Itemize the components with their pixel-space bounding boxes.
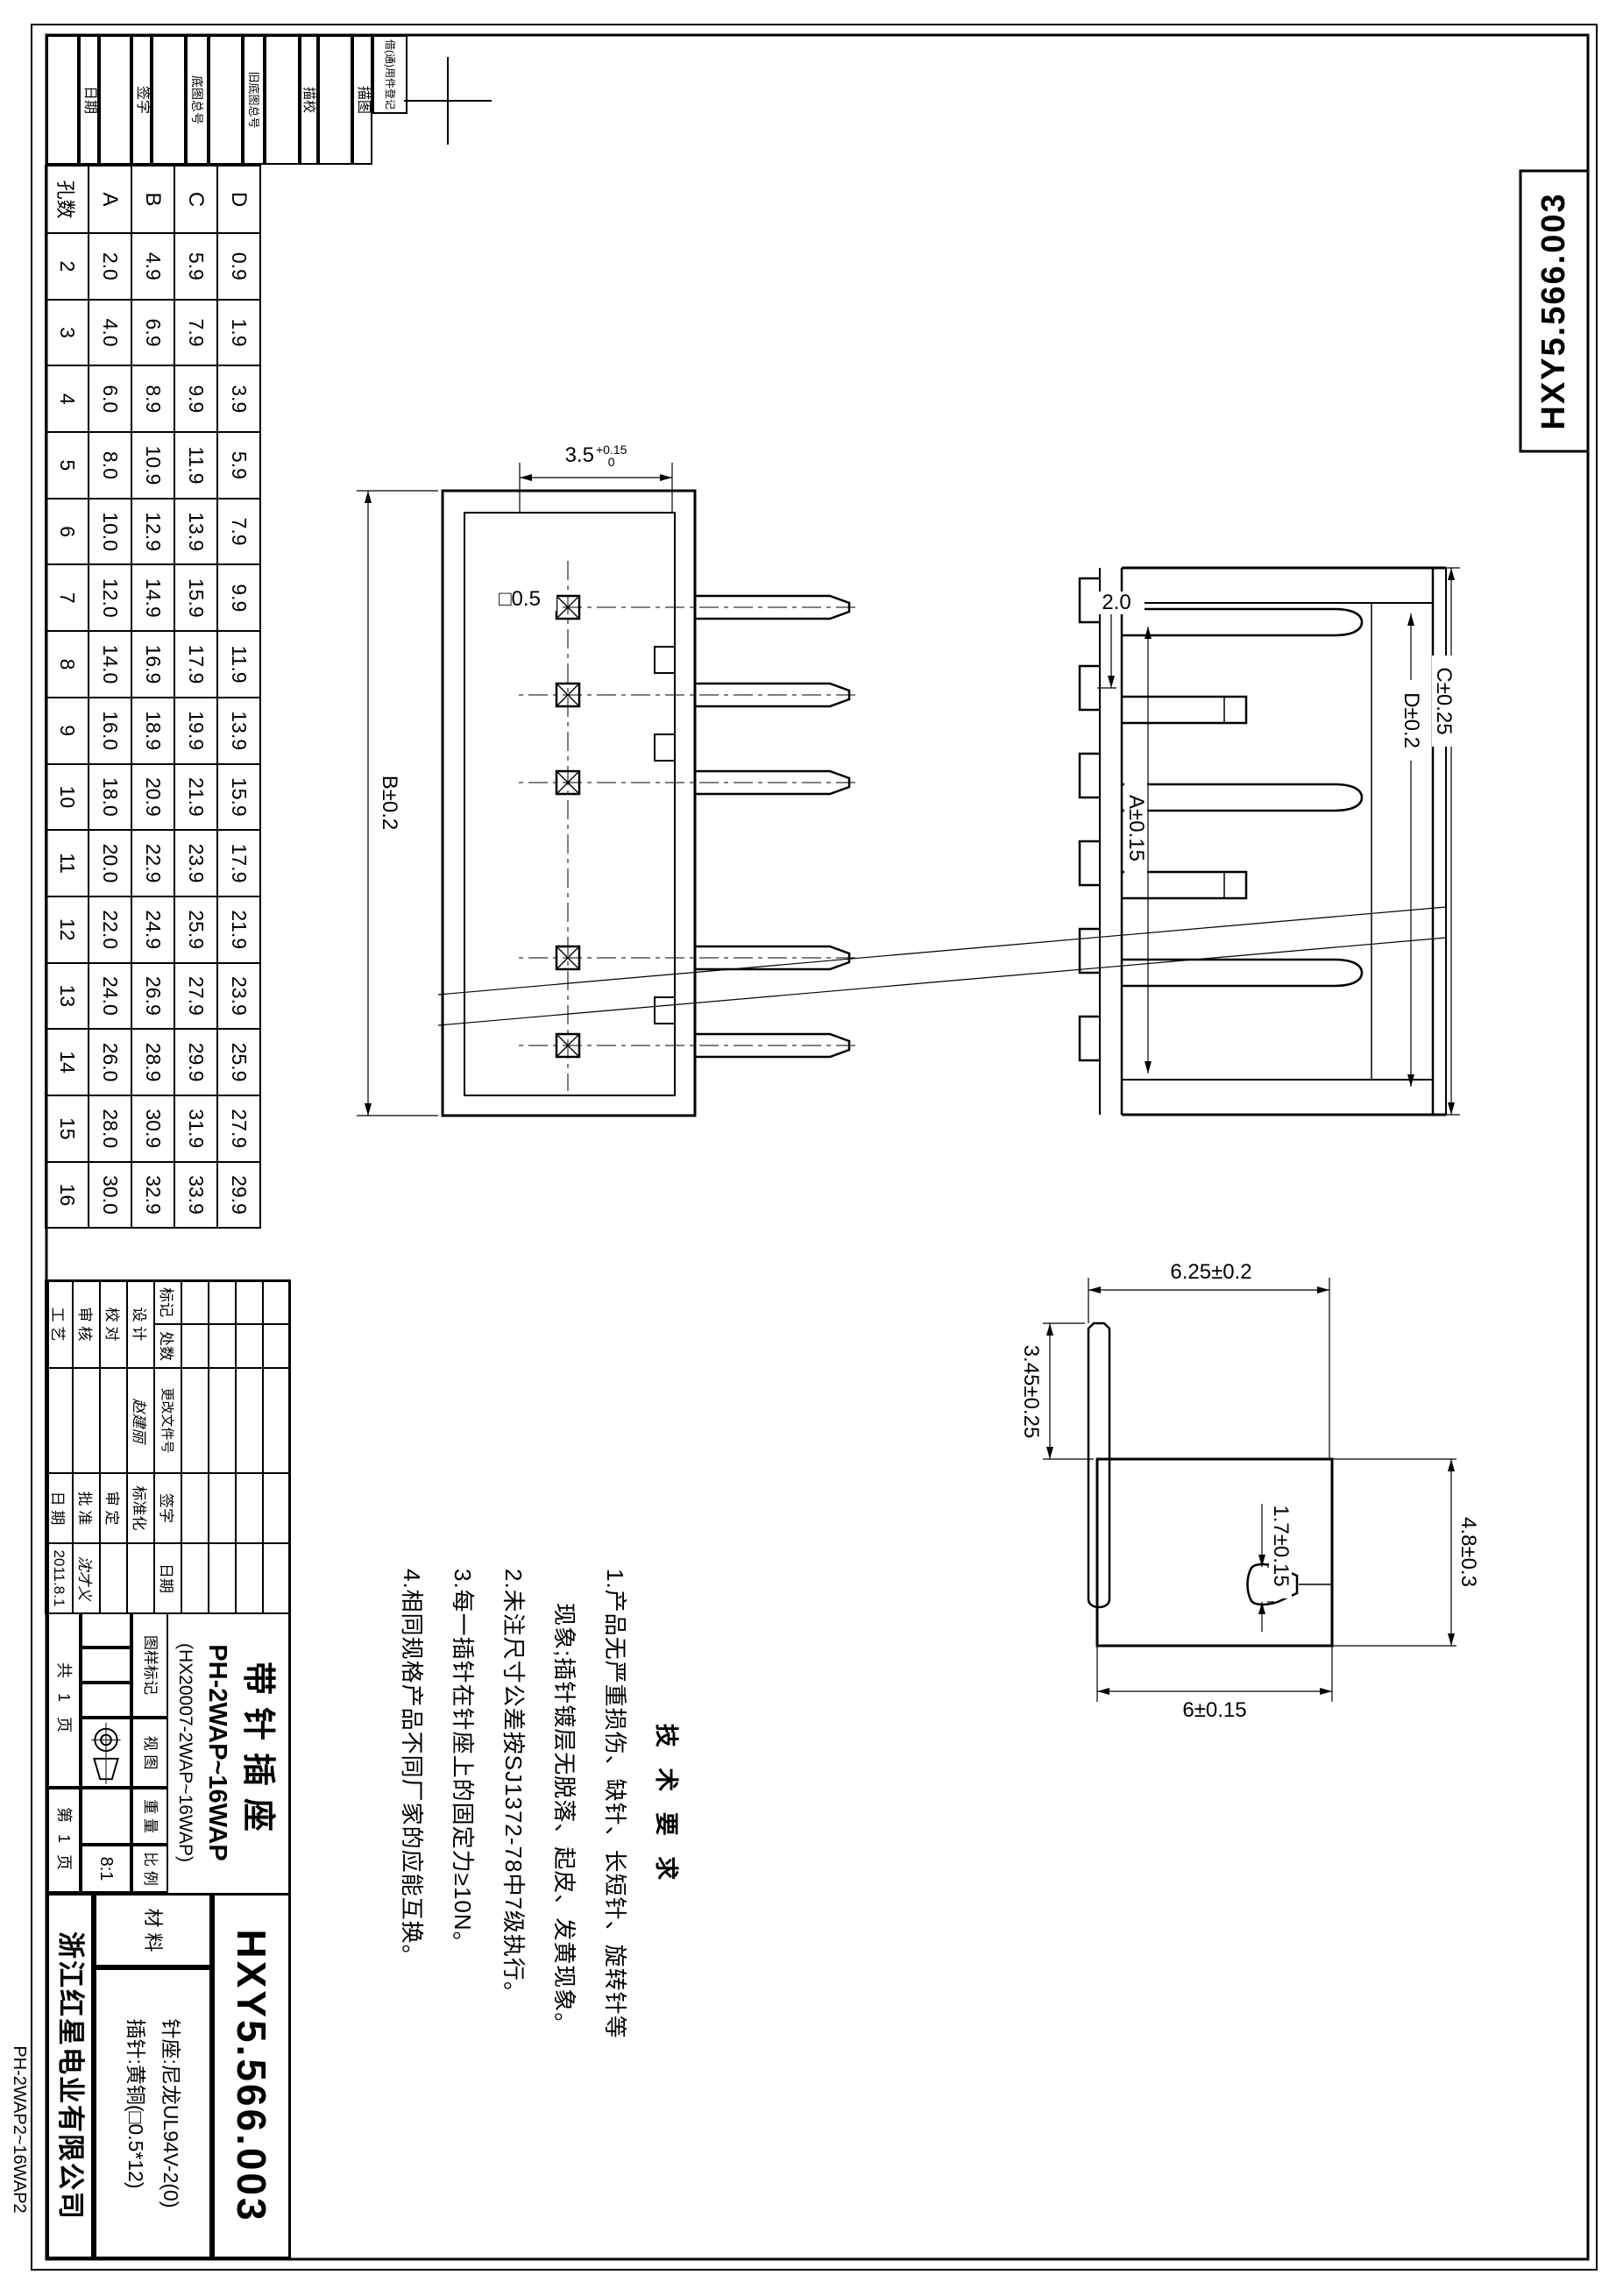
projection-symbol-cell xyxy=(81,1718,131,1788)
param-table-cell: 15 xyxy=(46,1095,89,1162)
fold-mark-cross xyxy=(404,57,492,145)
param-table-cell: 27.9 xyxy=(217,1095,260,1162)
param-table-cell: 32.9 xyxy=(131,1162,174,1229)
margin-strip-blank xyxy=(152,35,186,165)
revision-empty-cell xyxy=(236,1324,263,1368)
break-lines xyxy=(438,907,1446,1025)
marks-label-cell: 图样标记 xyxy=(131,1612,168,1718)
param-table-row: A2.04.06.08.010.012.014.016.018.020.022.… xyxy=(89,166,131,1228)
param-table-cell: 9.9 xyxy=(217,564,260,631)
param-table-cell: 14 xyxy=(46,1029,89,1095)
dim-side-outer: C±0.25 xyxy=(1432,655,1455,747)
part-title: 带针插座 xyxy=(237,1612,287,1893)
param-table-row-header: C xyxy=(174,166,217,233)
revision-empty-cell xyxy=(263,1543,290,1613)
param-table-cell: 14.0 xyxy=(89,631,131,698)
param-table-cell: 10 xyxy=(46,764,89,831)
param-table-cell: 3.9 xyxy=(217,365,260,432)
param-table-row-header: 孔数 xyxy=(46,166,89,233)
param-table-cell: 6.9 xyxy=(131,300,174,366)
param-table-cell: 6 xyxy=(46,499,89,565)
param-table-cell: 12 xyxy=(46,896,89,963)
param-table-cell: 12.9 xyxy=(131,499,174,565)
param-table-cell: 28.9 xyxy=(131,1029,174,1095)
titleblock-drawing-number: HXY5.566.003 xyxy=(212,1893,291,2259)
material-value-cell: 针座:尼龙UL94V-2(0) 插针:黄铜(□0.5*12) xyxy=(94,1967,212,2259)
dim-side-pitch: 2.0 xyxy=(1088,592,1145,614)
sign-name-2 xyxy=(127,1543,154,1613)
sign-name-2 xyxy=(100,1543,127,1613)
param-table-cell: 5.9 xyxy=(174,233,217,300)
param-table-cell: 29.9 xyxy=(217,1162,260,1229)
revision-empty-cell xyxy=(209,1473,236,1543)
param-table-cell: 20.9 xyxy=(131,764,174,831)
param-table-cell: 21.9 xyxy=(174,764,217,831)
param-table-cell: 13.9 xyxy=(217,698,260,764)
param-table-cell: 3 xyxy=(46,300,89,366)
param-table-cell: 23.9 xyxy=(174,830,217,896)
margin-strip-label: 旧底图总号 xyxy=(243,35,265,165)
param-table-cell: 7.9 xyxy=(217,499,260,565)
margin-strip-blank xyxy=(99,35,131,165)
param-table-cell: 17.9 xyxy=(174,631,217,698)
revision-header-cell: 处数 xyxy=(154,1324,181,1368)
tech-requirement-line: 4.相同规格产品不同厂家的应能互换。 xyxy=(397,1569,429,1968)
param-table-cell: 5 xyxy=(46,432,89,499)
param-table-row: 孔数2345678910111213141516 xyxy=(46,166,89,1228)
param-table-cell: 4.9 xyxy=(131,233,174,300)
tech-requirement-line: 1.产品无严重损伤、缺针、长短针、旋转针等 xyxy=(600,1569,633,2039)
param-table-cell: 26.0 xyxy=(89,1029,131,1095)
param-table-cell: 20.0 xyxy=(89,830,131,896)
dim-detail-body: 6±0.15 xyxy=(1171,1699,1258,1722)
param-table-cell: 8 xyxy=(46,631,89,698)
material-line-2: 插针:黄铜(□0.5*12) xyxy=(118,2018,152,2207)
param-table-cell: 6.0 xyxy=(89,365,131,432)
param-table-cell: 9.9 xyxy=(174,365,217,432)
scale-value-cell: 8:1 xyxy=(81,1845,131,1893)
view-label-cell: 视 图 xyxy=(131,1718,168,1788)
corner-drawing-number: HXY5.566.003 xyxy=(1520,171,1588,451)
param-table-cell: 28.0 xyxy=(89,1095,131,1162)
tech-requirement-line: 2.未注尺寸公差按SJ1372-78中7级执行。 xyxy=(499,1569,531,2005)
param-table-cell: 4 xyxy=(46,365,89,432)
sign-role-label: 设 计 xyxy=(127,1280,154,1368)
marks-box-1 xyxy=(81,1612,131,1648)
revision-empty-cell xyxy=(181,1280,209,1324)
sheets-total-cell: 共 1 页 xyxy=(46,1612,81,1788)
margin-strip-blank xyxy=(209,35,243,165)
param-table-cell: 25.9 xyxy=(217,1029,260,1095)
drawing-sheet: HXY5.566.003 借(通)用件登记描图描校旧底图总号底图总号签字日期 D… xyxy=(0,0,1623,2296)
dim-front-pitch-tol-dn: 0 xyxy=(596,456,627,468)
param-table-cell: 12.0 xyxy=(89,564,131,631)
param-table-cell: 16.0 xyxy=(89,698,131,764)
param-table-cell: 27.9 xyxy=(174,963,217,1030)
sign-role-label-2: 批 准 xyxy=(73,1473,100,1543)
param-table-cell: 11.9 xyxy=(217,631,260,698)
scale-label-cell: 比 例 xyxy=(131,1845,168,1893)
margin-strip-label: 描图 xyxy=(352,35,372,165)
revision-header-cell: 日期 xyxy=(154,1543,181,1613)
param-table-cell: 13.9 xyxy=(174,499,217,565)
param-table-cell: 8.9 xyxy=(131,365,174,432)
sign-name: 赵建丽 xyxy=(127,1368,154,1473)
param-table-cell: 21.9 xyxy=(217,896,260,963)
param-table-row: B4.96.98.910.912.914.916.918.920.922.924… xyxy=(131,166,174,1228)
dim-front-length: B±0.2 xyxy=(377,759,401,847)
margin-code: PH-2WAP2~16WAP2 xyxy=(9,1998,30,2261)
sign-name-2: 2011.8.1 xyxy=(46,1543,73,1613)
param-table-cell: 18.0 xyxy=(89,764,131,831)
param-table-cell: 16.9 xyxy=(131,631,174,698)
projection-symbol-icon xyxy=(82,1719,130,1786)
margin-strip-label: 借(通)用件登记 xyxy=(372,35,408,114)
margin-strip-blank xyxy=(46,35,79,165)
revision-empty-cell xyxy=(209,1324,236,1368)
param-table-cell: 10.0 xyxy=(89,499,131,565)
revision-empty-cell xyxy=(209,1543,236,1613)
margin-strip-label: 签字 xyxy=(131,35,152,165)
revision-empty-cell xyxy=(209,1368,236,1473)
dim-front-pin-square: □0.5 xyxy=(483,588,556,611)
param-table-cell: 23.9 xyxy=(217,963,260,1030)
param-table-cell: 5.9 xyxy=(217,432,260,499)
marks-box-2 xyxy=(81,1648,131,1683)
param-table-cell: 1.9 xyxy=(217,300,260,366)
dim-side-span: A±0.15 xyxy=(1124,783,1147,874)
sign-role-label: 工 艺 xyxy=(46,1280,73,1368)
drawing-pin-detail xyxy=(1043,1278,1456,1702)
param-table-cell: 0.9 xyxy=(217,233,260,300)
dim-front-pitch-tol-up: +0.15 xyxy=(596,443,627,456)
param-table-cell: 18.9 xyxy=(131,698,174,764)
param-table-row: D0.91.93.95.97.99.911.913.915.917.921.92… xyxy=(217,166,260,1228)
param-table-cell: 22.0 xyxy=(89,896,131,963)
part-model-alt: (HX20007-2WAP~16WAP) xyxy=(172,1612,198,1893)
param-table-cell: 11.9 xyxy=(174,432,217,499)
tech-requirement-line: 3.每一插针在针座上的固定力≥10N。 xyxy=(448,1569,480,1955)
param-table-cell: 31.9 xyxy=(174,1095,217,1162)
revision-empty-cell xyxy=(181,1473,209,1543)
drawing-front-view xyxy=(357,463,855,1116)
param-table-cell: 15.9 xyxy=(174,564,217,631)
param-table-cell: 16 xyxy=(46,1162,89,1229)
param-table-cell: 2.0 xyxy=(89,233,131,300)
param-table-cell: 25.9 xyxy=(174,896,217,963)
revision-empty-cell xyxy=(263,1280,290,1324)
param-table-cell: 7 xyxy=(46,564,89,631)
sign-name xyxy=(73,1368,100,1473)
dim-detail-bullet: 1.7±0.15 xyxy=(1269,1493,1292,1598)
param-table-cell: 19.9 xyxy=(174,698,217,764)
revision-header-cell: 签字 xyxy=(154,1473,181,1543)
dim-detail-tip: 3.45±0.25 xyxy=(1019,1334,1042,1449)
param-table-cell: 15.9 xyxy=(217,764,260,831)
param-table-cell: 30.0 xyxy=(89,1162,131,1229)
revision-empty-cell xyxy=(263,1368,290,1473)
weight-label-cell: 重 量 xyxy=(131,1788,168,1845)
margin-strip-label: 底图总号 xyxy=(186,35,209,165)
param-table-cell: 24.9 xyxy=(131,896,174,963)
sign-role-label-2: 日 期 xyxy=(46,1473,73,1543)
param-table-cell: 7.9 xyxy=(174,300,217,366)
sign-role-label-2: 标准化 xyxy=(127,1473,154,1543)
revision-empty-cell xyxy=(263,1324,290,1368)
param-table-cell: 4.0 xyxy=(89,300,131,366)
revision-empty-cell xyxy=(236,1473,263,1543)
param-table-row-header: B xyxy=(131,166,174,233)
revision-empty-cell xyxy=(236,1543,263,1613)
material-label-cell: 材 料 xyxy=(94,1893,212,1967)
param-table-row: C5.97.99.911.913.915.917.919.921.923.925… xyxy=(174,166,217,1228)
param-table-row-header: A xyxy=(89,166,131,233)
revision-empty-cell xyxy=(181,1368,209,1473)
param-table-cell: 2 xyxy=(46,233,89,300)
sign-role-label: 校 对 xyxy=(100,1280,127,1368)
sheet-no-cell: 第 1 页 xyxy=(46,1788,81,1893)
tech-requirements-heading: 技 术 要 求 xyxy=(654,1665,684,1945)
margin-strip-blank xyxy=(265,35,300,165)
part-model: PH-2WAP~16WAP xyxy=(200,1612,235,1893)
company-cell: 浙江红星电业有限公司 xyxy=(46,1893,94,2259)
signature-grid: 标记处数更改文件号签字日期设 计赵建丽标准化校 对审 定审 核批 准沈才义工 艺… xyxy=(45,1279,291,1614)
revision-empty-cell xyxy=(236,1280,263,1324)
dim-side-inner: D±0.2 xyxy=(1400,680,1422,761)
material-line-1: 针座:尼龙UL94V-2(0) xyxy=(153,2018,188,2207)
dim-detail-width: 4.8±0.3 xyxy=(1456,1504,1479,1600)
param-table-cell: 17.9 xyxy=(217,830,260,896)
param-table-cell: 14.9 xyxy=(131,564,174,631)
weight-value-cell xyxy=(81,1788,131,1845)
sign-role-label: 审 核 xyxy=(73,1280,100,1368)
param-table-cell: 33.9 xyxy=(174,1162,217,1229)
margin-strip-label: 日期 xyxy=(79,35,99,165)
marks-box-3 xyxy=(81,1683,131,1718)
param-table-cell: 9 xyxy=(46,698,89,764)
param-table-cell: 13 xyxy=(46,963,89,1030)
param-table-cell: 11 xyxy=(46,830,89,896)
tech-requirement-line: 现象;插针镀层无脱落、起皮、发黄现象。 xyxy=(549,1603,582,2036)
param-table-cell: 8.0 xyxy=(89,432,131,499)
param-table-cell: 22.9 xyxy=(131,830,174,896)
sign-name xyxy=(100,1368,127,1473)
param-table-cell: 29.9 xyxy=(174,1029,217,1095)
revision-empty-cell xyxy=(181,1324,209,1368)
revision-header-cell: 更改文件号 xyxy=(154,1368,181,1473)
revision-empty-cell xyxy=(263,1473,290,1543)
parameter-table: D0.91.93.95.97.99.911.913.915.917.921.92… xyxy=(45,165,261,1229)
dim-front-pitch: 3.5 +0.15 0 xyxy=(550,444,641,467)
param-table-cell: 30.9 xyxy=(131,1095,174,1162)
margin-strip-label: 描校 xyxy=(300,35,318,165)
revision-empty-cell xyxy=(209,1280,236,1324)
sign-name xyxy=(46,1368,73,1473)
revision-empty-cell xyxy=(181,1543,209,1613)
dim-detail-height: 6.25±0.2 xyxy=(1159,1261,1264,1284)
param-table-cell: 10.9 xyxy=(131,432,174,499)
param-table-row-header: D xyxy=(217,166,260,233)
revision-empty-cell xyxy=(236,1368,263,1473)
param-table-cell: 24.0 xyxy=(89,963,131,1030)
revision-header-cell: 标记 xyxy=(154,1280,181,1324)
sign-name-2: 沈才义 xyxy=(73,1543,100,1613)
margin-strip-blank xyxy=(318,35,352,165)
sign-role-label-2: 审 定 xyxy=(100,1473,127,1543)
param-table-cell: 26.9 xyxy=(131,963,174,1030)
